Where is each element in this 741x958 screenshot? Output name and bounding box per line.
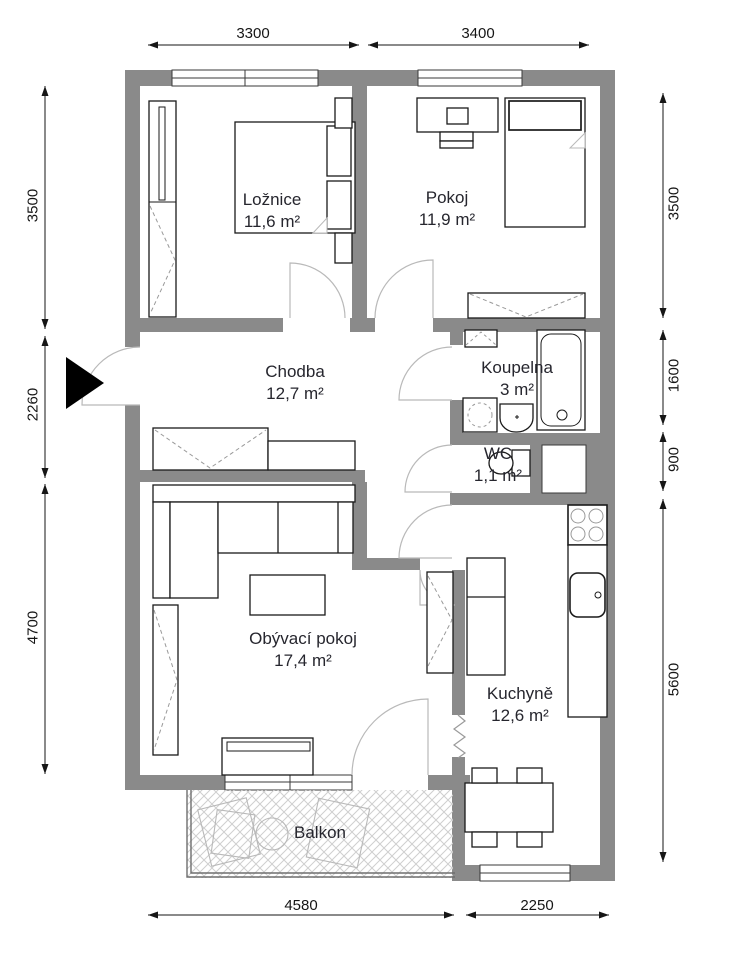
sofa-corner-seat [170, 502, 218, 598]
room-label-pokoj: Pokoj 11,9 m² [372, 187, 522, 232]
room-name: Chodba [220, 361, 370, 383]
chodba-furniture [153, 428, 355, 470]
window-pokoj [418, 70, 522, 86]
room-label-koupelna: Koupelna 3 m² [442, 357, 592, 402]
door-arc-loznice [290, 263, 345, 318]
room-area: 17,4 m² [213, 650, 393, 672]
dining-chair-1 [472, 768, 497, 783]
door-arc-balcony [352, 699, 428, 775]
wall-shaft-right [586, 445, 600, 493]
wall-living-kitchen-b [452, 757, 465, 867]
desk-chair [440, 132, 473, 141]
room-name: Koupelna [442, 357, 592, 379]
dim-right-bottom: 5600 [666, 640, 683, 720]
wall-living-top [140, 470, 365, 482]
room-name: Pokoj [372, 187, 522, 209]
bed-pillow-top [327, 126, 351, 176]
room-label-balkon: Balkon [245, 822, 395, 844]
nightstand-bottom [335, 233, 352, 263]
dining-chair-3 [472, 832, 497, 847]
wall-hall-north-a [140, 318, 283, 332]
window-living [225, 775, 352, 790]
dim-left-top: 3500 [25, 166, 42, 246]
hall-sideboard [153, 428, 268, 470]
door-arc-kitchen [399, 505, 452, 558]
room-label-loznice: Ložnice 11,6 m² [197, 189, 347, 234]
window-kitchen [480, 865, 570, 881]
room-label-obyvaci-pokoj: Obývací pokoj 17,4 m² [213, 628, 393, 673]
dim-top-right: 3400 [428, 25, 528, 42]
kitchen-furniture [465, 505, 607, 847]
kitchen-sink-drain [595, 592, 601, 598]
door-arc-pokoj [375, 260, 433, 318]
coffee-table [250, 575, 325, 615]
room-area: 11,9 m² [372, 209, 522, 231]
dim-right-upper-middle: 1600 [666, 336, 683, 416]
hall-cabinet [268, 441, 355, 470]
dim-left-bottom: 4700 [25, 588, 42, 668]
desk-monitor [447, 108, 468, 124]
wall-bath-left-stub [450, 332, 463, 345]
room-area: 12,7 m² [220, 383, 370, 405]
single-bed-pillow [509, 101, 581, 130]
room-area: 1,1 m² [423, 465, 573, 487]
dim-right-top: 3500 [666, 164, 683, 244]
cabinet-living [427, 572, 453, 673]
kitchen-island [467, 558, 505, 675]
room-label-wc: WC 1,1 m² [423, 443, 573, 488]
nightstand-top [335, 98, 352, 128]
dining-table [465, 783, 553, 832]
room-area: 3 m² [442, 379, 592, 401]
dining-chair-2 [517, 768, 542, 783]
wardrobe-rod [159, 107, 165, 200]
dim-bottom-right: 2250 [487, 897, 587, 914]
dim-left-middle: 2260 [25, 365, 42, 445]
wall-bath-left [450, 400, 463, 433]
dim-bottom-left: 4580 [251, 897, 351, 914]
room-name: Ložnice [197, 189, 347, 211]
room-name: WC [423, 443, 573, 465]
room-label-chodba: Chodba 12,7 m² [220, 361, 370, 406]
dim-right-lower-middle: 900 [666, 420, 683, 500]
dresser-pokoj [468, 293, 585, 318]
desk-chair-seat [440, 141, 473, 148]
floor-plan-drawing [0, 0, 741, 958]
tv [227, 742, 310, 751]
room-area: 12,6 m² [445, 705, 595, 727]
wall-corridor-bottom [352, 558, 420, 570]
room-name: Balkon [245, 822, 395, 844]
window-loznice [172, 70, 318, 86]
floor-plan: Ložnice 11,6 m² Pokoj 11,9 m² Chodba 12,… [0, 0, 741, 958]
wardrobe-living [153, 605, 178, 755]
wall-right [600, 86, 615, 881]
wall-living-bottom-b [428, 775, 470, 790]
sofa-back [153, 485, 355, 502]
wall-living-bottom-a [125, 775, 225, 790]
dim-top-left: 3300 [203, 25, 303, 42]
room-name: Kuchyně [445, 683, 595, 705]
room-label-kuchyne: Kuchyně 12,6 m² [445, 683, 595, 728]
wall-left-upper [125, 86, 140, 347]
sofa-back-left [153, 502, 170, 598]
wall-kitchen-top [450, 493, 600, 505]
room-name: Obývací pokoj [213, 628, 393, 650]
dining-chair-4 [517, 832, 542, 847]
room-area: 11,6 m² [197, 211, 347, 233]
wall-hall-north-b [350, 318, 375, 332]
sofa-seats [218, 502, 353, 553]
wall-left-lower [125, 405, 140, 790]
bathtub-drain [557, 410, 567, 420]
